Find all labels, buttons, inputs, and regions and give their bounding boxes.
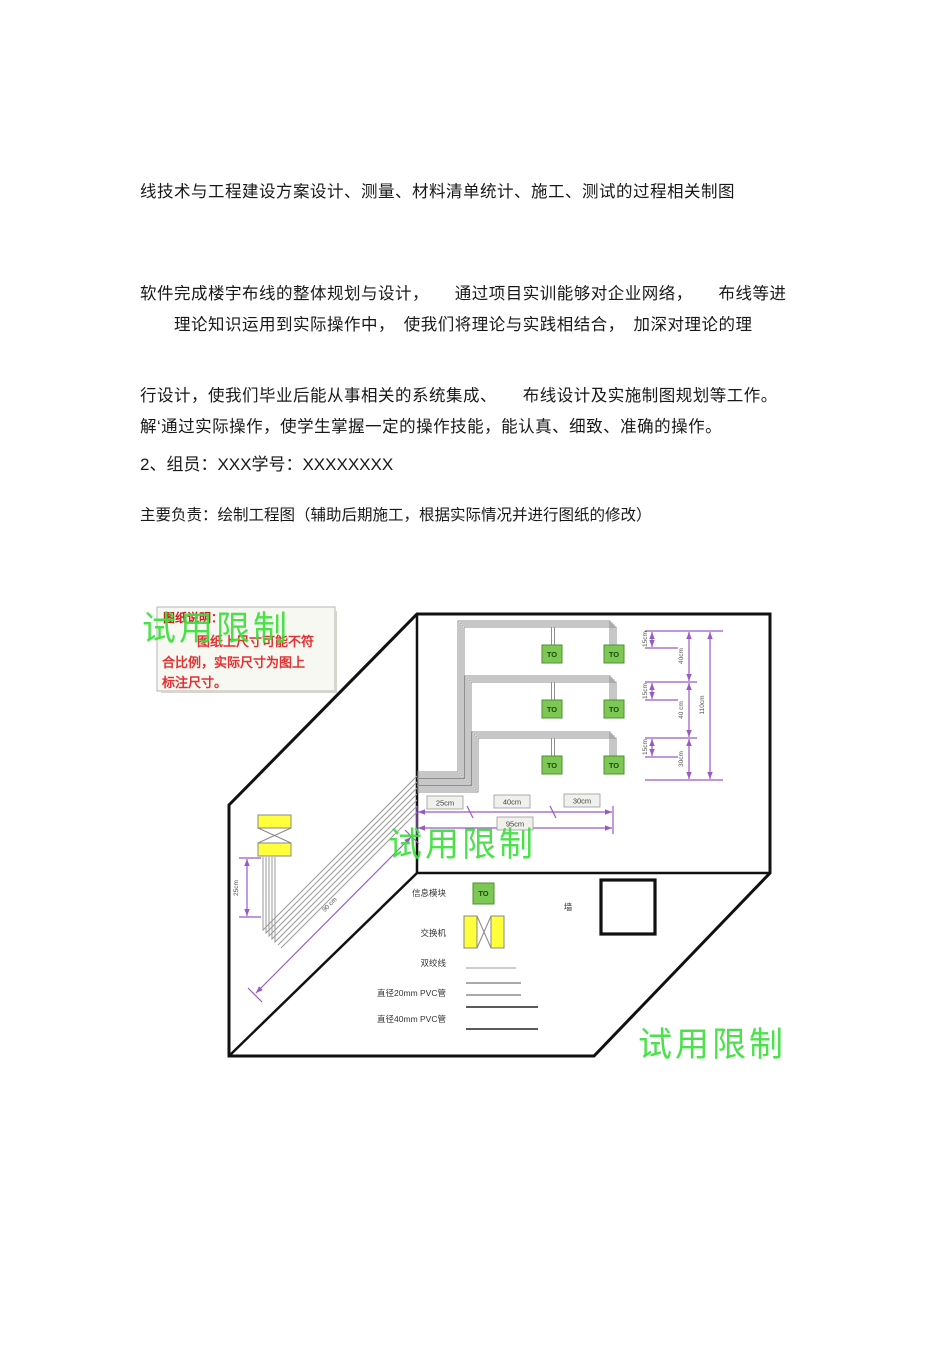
- dim-25cm-left: 25cm: [233, 880, 240, 896]
- watermark-top-left: 试用限制: [142, 610, 290, 648]
- dimension-left-vertical: [239, 858, 261, 917]
- dim-110cm: 110cm: [699, 695, 706, 714]
- wall-symbol: [601, 880, 655, 934]
- engineering-diagram: 15cm 15cm 15cm 40cm 40 cm 30cm 110cm 25c…: [140, 570, 830, 1120]
- to-module-label: TO: [547, 705, 557, 714]
- dim-15cm-2: 15cm: [642, 683, 649, 699]
- watermark-center: 试用限制: [388, 826, 536, 864]
- dim-30cm: 30cm: [573, 797, 591, 806]
- to-module-label: TO: [547, 650, 557, 659]
- legend-switch-label: 交换机: [420, 928, 446, 938]
- dim-right-seg-3: 30cm: [678, 751, 685, 767]
- dim-40cm: 40cm: [503, 798, 521, 807]
- note-line-2: 合比例，实际尺寸为图上: [162, 655, 305, 670]
- legend-to-symbol: TO: [473, 883, 494, 904]
- member-line: 2、组员：XXX学号：XXXXXXXX: [140, 450, 393, 475]
- document-page: 线技术与工程建设方案设计、测量、材料清单统计、施工、测试的过程相关制图 软件完成…: [0, 0, 950, 1345]
- switch-symbol: [258, 815, 291, 856]
- paragraph-2-line-2: 解‘通过实际操作，使学生掌握一定的操作技能，能认真、细致、准确的操作。: [140, 410, 818, 444]
- duty-line: 主要负责：绘制工程图（辅助后期施工，根据实际情况并进行图纸的修改）: [140, 503, 652, 525]
- cable-runs: [417, 621, 616, 792]
- note-line-3: 标注尺寸。: [161, 675, 227, 690]
- paragraph-1-line-1: 线技术与工程建设方案设计、测量、材料清单统计、施工、测试的过程相关制图: [140, 175, 818, 209]
- to-module-label: TO: [547, 761, 557, 770]
- to-module-label: TO: [478, 889, 488, 898]
- legend-switch-symbol: [464, 916, 504, 948]
- legend-pvc20-lines: [466, 983, 521, 995]
- legend-twisted-pair-label: 双绞线: [420, 958, 446, 968]
- wall-label: 墙: [564, 902, 573, 912]
- to-module-label: TO: [609, 705, 619, 714]
- dim-25cm: 25cm: [436, 799, 454, 808]
- legend-info-module-label: 信息模块: [412, 888, 447, 898]
- dim-right-seg-1: 40cm: [678, 648, 685, 664]
- to-module-label: TO: [609, 650, 619, 659]
- paragraph-2-line-1: 理论知识运用到实际操作中， 使我们将理论与实践相结合， 加深对理论的理: [140, 308, 818, 342]
- legend: 信息模块 TO 交换机 双绞线 直径20mm PVC管 直径40mm PVC管: [377, 883, 538, 1029]
- legend-pvc40-lines: [466, 1007, 538, 1029]
- dim-15cm-3: 15cm: [642, 739, 649, 755]
- legend-pvc40-label: 直径40mm PVC管: [377, 1014, 446, 1024]
- to-module-label: TO: [609, 761, 619, 770]
- legend-pvc20-label: 直径20mm PVC管: [377, 988, 446, 998]
- watermark-bottom-right: 试用限制: [638, 1026, 786, 1064]
- dim-right-seg-2: 40 cm: [678, 701, 685, 719]
- dim-15cm-1: 15cm: [642, 631, 649, 647]
